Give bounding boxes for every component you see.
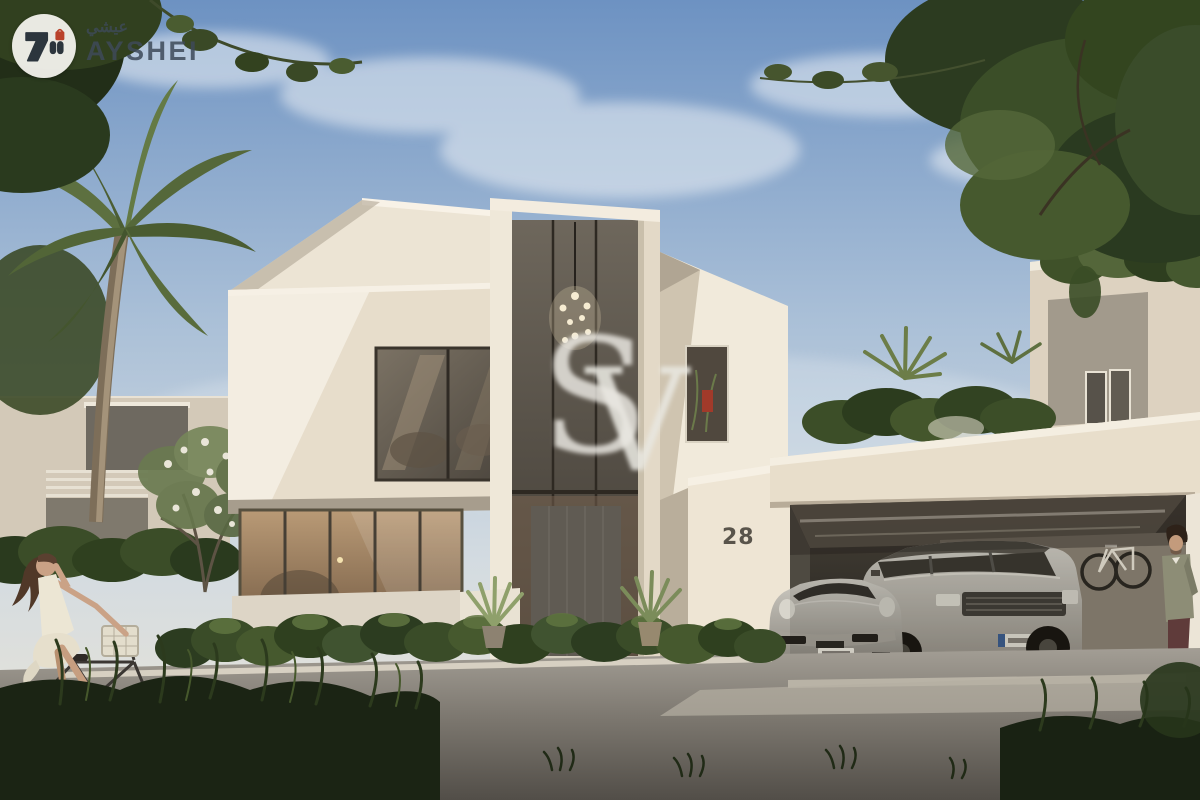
ayshei-logo-text: عيشي AYSHEI — [86, 14, 199, 65]
house-number: 28 — [722, 525, 755, 550]
right-wing-window — [686, 346, 728, 442]
lock-icon — [55, 30, 64, 41]
listing-photo: 28 — [0, 0, 1200, 800]
ayshei-logo: عيشي AYSHEI — [12, 14, 199, 78]
brand-name: AYSHEI — [86, 37, 199, 65]
left-wing — [228, 282, 520, 514]
sv-watermark-v: V — [584, 339, 691, 504]
brand-name-arabic: عيشي — [86, 20, 199, 37]
ayshei-logo-badge — [12, 14, 76, 78]
